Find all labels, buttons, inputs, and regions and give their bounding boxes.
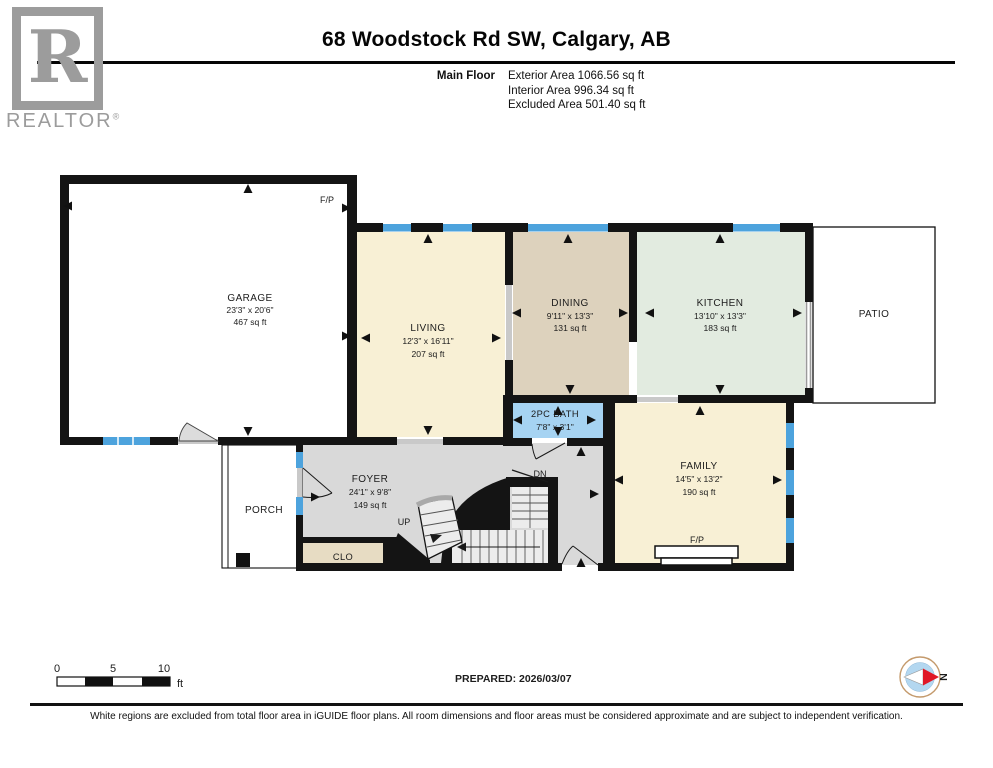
scale-tick-0: 0	[54, 663, 60, 675]
compass-north-label: N	[937, 673, 949, 681]
svg-text:131 sq ft: 131 sq ft	[554, 323, 588, 333]
svg-text:183 sq ft: 183 sq ft	[704, 323, 738, 333]
svg-text:207 sq ft: 207 sq ft	[412, 349, 446, 359]
svg-text:14'5" x 13'2": 14'5" x 13'2"	[675, 474, 722, 484]
patio-door	[807, 302, 811, 388]
prepared-date: PREPARED: 2026/03/07	[455, 673, 572, 685]
fireplace	[655, 546, 738, 565]
svg-text:FAMILY: FAMILY	[680, 461, 717, 472]
living-floor	[357, 232, 505, 437]
garage-fp-label: F/P	[320, 195, 334, 205]
porch-post	[236, 553, 250, 567]
foyer-label: FOYER 24'1" x 9'8" 149 sq ft	[349, 474, 391, 510]
svg-text:KITCHEN: KITCHEN	[697, 298, 744, 309]
door-sidelight	[296, 452, 303, 468]
floorplan-page: { "header": { "title": "68 Woodstock Rd …	[0, 0, 993, 768]
scale-unit: ft	[177, 678, 183, 690]
patio-label: PATIO	[859, 309, 890, 320]
svg-text:2PC BATH: 2PC BATH	[531, 409, 579, 419]
scale-tick-5: 5	[110, 663, 116, 675]
stairs-lower-run	[452, 530, 548, 563]
svg-text:149 sq ft: 149 sq ft	[354, 500, 388, 510]
svg-text:467 sq ft: 467 sq ft	[234, 317, 268, 327]
family-fp-label: F/P	[690, 535, 704, 545]
svg-text:GARAGE: GARAGE	[227, 293, 272, 304]
garage-window	[103, 437, 150, 445]
svg-text:13'10" x 13'3": 13'10" x 13'3"	[694, 311, 746, 321]
svg-text:7'8" x 3'1": 7'8" x 3'1"	[536, 422, 574, 432]
closet-label: CLO	[333, 552, 353, 562]
svg-text:DINING: DINING	[551, 298, 588, 309]
scale-bar: 0 5 10 ft	[54, 663, 183, 690]
svg-text:24'1" x 9'8": 24'1" x 9'8"	[349, 487, 391, 497]
footer-rule	[30, 703, 963, 706]
svg-text:23'3" x 20'6": 23'3" x 20'6"	[226, 305, 273, 315]
stairs-dn-label: DN	[534, 469, 547, 479]
door-sidelight	[296, 497, 303, 515]
porch-label: PORCH	[245, 505, 283, 516]
svg-text:9'11" x 13'3": 9'11" x 13'3"	[547, 311, 594, 321]
svg-text:FOYER: FOYER	[352, 474, 388, 485]
scale-tick-10: 10	[158, 663, 170, 675]
disclaimer-text: White regions are excluded from total fl…	[0, 711, 993, 722]
dining-label: DINING 9'11" x 13'3" 131 sq ft	[547, 298, 594, 333]
compass: N	[900, 657, 949, 697]
svg-text:12'3" x 16'11": 12'3" x 16'11"	[402, 336, 453, 346]
stairs-up-label: UP	[398, 517, 411, 527]
svg-text:LIVING: LIVING	[410, 323, 445, 334]
garage-floor	[68, 184, 347, 437]
floor-plan-svg: GARAGE 23'3" x 20'6" 467 sq ft LIVING 12…	[0, 0, 993, 768]
svg-text:190 sq ft: 190 sq ft	[683, 487, 717, 497]
